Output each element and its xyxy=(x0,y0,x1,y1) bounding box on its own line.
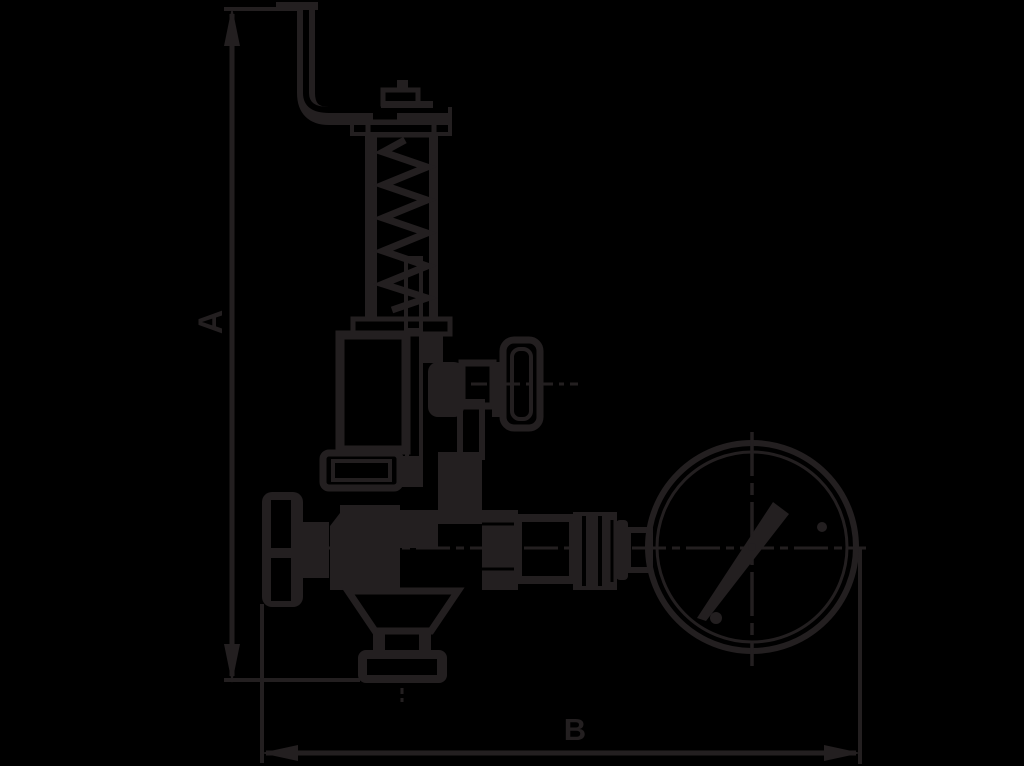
lever-end-cap xyxy=(276,2,318,10)
gauge-needle xyxy=(697,502,789,621)
outlet-neck-right xyxy=(419,631,431,652)
hex-fitting-left xyxy=(482,510,518,590)
dim-b-arrow-right xyxy=(824,745,861,761)
hex-fitting-right xyxy=(573,512,617,590)
handwheel-stem xyxy=(303,522,329,578)
outlet xyxy=(348,591,458,702)
cap-plate xyxy=(381,101,433,108)
spring-housing xyxy=(352,123,450,334)
outlet-neck-left xyxy=(373,631,385,652)
handwheel xyxy=(262,492,329,607)
housing-right-bar xyxy=(429,133,438,321)
dim-a-arrow-up xyxy=(224,7,240,46)
union-nut-inner xyxy=(333,461,390,480)
bonnet-right-boss xyxy=(421,333,443,363)
bonnet xyxy=(340,333,443,460)
valve-technical-drawing: A B xyxy=(0,0,1024,766)
union-nut-boss xyxy=(402,456,423,487)
drawing-canvas: A B xyxy=(0,0,1024,766)
handwheel-window-bottom xyxy=(271,558,291,601)
outlet-funnel xyxy=(348,591,458,631)
dim-b-arrow-left xyxy=(261,745,298,761)
handwheel-window-top xyxy=(271,500,291,548)
gauge-hub xyxy=(748,543,756,551)
valve-body xyxy=(330,505,438,590)
test-valve xyxy=(428,340,578,428)
lever-arm-core xyxy=(306,8,448,110)
dim-a-label: A xyxy=(192,310,230,335)
gauge-screw-dot-right xyxy=(817,522,827,532)
union-nut xyxy=(323,453,423,488)
branch-column xyxy=(438,452,482,524)
dim-a-arrow-down xyxy=(224,644,240,683)
outlet-flange-window xyxy=(367,659,437,675)
gauge-pipe xyxy=(482,510,650,590)
body-block xyxy=(330,505,438,590)
housing-left-bar xyxy=(365,133,377,321)
branch-elbow xyxy=(438,402,482,524)
gauge-screw-dot-left xyxy=(710,612,722,624)
lever-arm xyxy=(306,6,452,116)
dim-b-label: B xyxy=(564,712,586,747)
bonnet-body xyxy=(340,335,406,450)
